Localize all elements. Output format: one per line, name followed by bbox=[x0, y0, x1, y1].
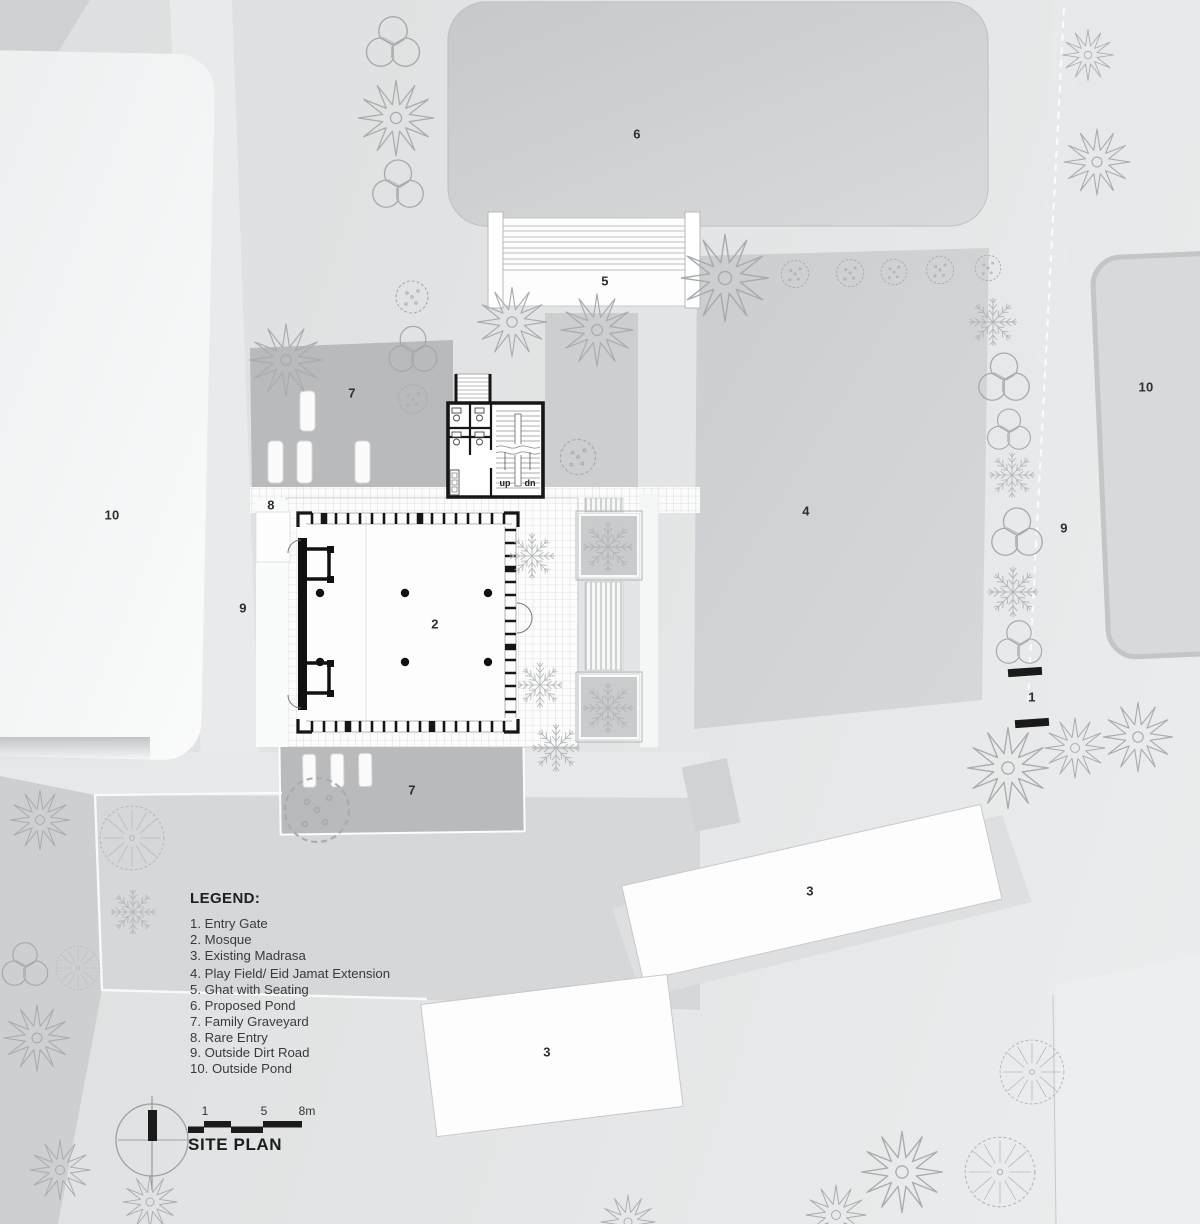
label-outside-dirt-road-left: 9 bbox=[239, 601, 247, 616]
tree-icon bbox=[989, 452, 1035, 498]
label-entry-gate: 1 bbox=[1028, 690, 1036, 705]
legend: LEGEND: 1. Entry Gate 2. Mosque 3. Exist… bbox=[190, 890, 470, 1077]
tree-icon bbox=[367, 17, 420, 67]
tree-icon bbox=[969, 298, 1017, 346]
tree-icon bbox=[110, 889, 156, 935]
stair-dn-label: dn bbox=[525, 478, 536, 488]
legend-item: 2. Mosque bbox=[190, 932, 470, 948]
parcel-left-dark bbox=[0, 776, 102, 1224]
legend-title: LEGEND: bbox=[190, 890, 470, 907]
tree-icon bbox=[601, 1195, 655, 1224]
site-plan-drawing: up dn bbox=[0, 0, 1200, 1224]
tree-icon bbox=[373, 160, 423, 207]
label-existing-madrasa-upper: 3 bbox=[806, 884, 814, 899]
scale-tick: 8m bbox=[299, 1104, 316, 1118]
proposed-pond-shape bbox=[448, 2, 988, 226]
stripe-walk-mid bbox=[585, 582, 623, 670]
parcel-bottom-right bbox=[1056, 955, 1200, 1224]
tree-icon bbox=[509, 533, 555, 579]
legend-item: 9. Outside Dirt Road bbox=[190, 1045, 470, 1061]
scale-tick: 1 bbox=[202, 1104, 209, 1118]
qibla-wall bbox=[298, 538, 307, 710]
label-mosque: 2 bbox=[431, 617, 439, 632]
tree-icon bbox=[965, 1137, 1035, 1207]
tree-icon bbox=[583, 683, 633, 733]
label-existing-madrasa-lower: 3 bbox=[543, 1045, 551, 1060]
legend-item: 4. Play Field/ Eid Jamat Extension bbox=[190, 966, 470, 982]
mosque-plan bbox=[288, 513, 532, 733]
tree-icon bbox=[988, 409, 1031, 449]
label-proposed-pond: 6 bbox=[633, 127, 641, 142]
outside-pond-left-shape bbox=[0, 49, 215, 760]
tree-icon bbox=[1064, 129, 1130, 195]
scale-tick: 5 bbox=[261, 1104, 268, 1118]
legend-item: 3. Existing Madrasa bbox=[190, 948, 470, 964]
label-outside-pond-right: 10 bbox=[1138, 380, 1153, 395]
tree-icon bbox=[517, 662, 563, 708]
tree-icon bbox=[123, 1175, 177, 1224]
service-block: up dn bbox=[448, 374, 543, 497]
label-rare-entry: 8 bbox=[267, 498, 275, 513]
drawing-title: SITE PLAN bbox=[188, 1135, 282, 1155]
tree-icon bbox=[359, 81, 434, 156]
stripe-walk-top bbox=[585, 498, 623, 512]
legend-item: 6. Proposed Pond bbox=[190, 998, 470, 1014]
tree-icon bbox=[988, 567, 1038, 617]
label-ghat-with-seating: 5 bbox=[601, 274, 609, 289]
legend-item: 1. Entry Gate bbox=[190, 916, 470, 932]
label-family-graveyard-south: 7 bbox=[408, 783, 416, 798]
label-play-field: 4 bbox=[802, 504, 810, 519]
label-outside-dirt-road-right: 9 bbox=[1060, 521, 1068, 536]
ghat-shape bbox=[488, 212, 700, 308]
tree-icon bbox=[1000, 1040, 1064, 1104]
scale-bar-icon bbox=[188, 1121, 302, 1133]
legend-item: 7. Family Graveyard bbox=[190, 1014, 470, 1030]
tree-icon bbox=[583, 522, 633, 572]
rare-entry-pad bbox=[256, 512, 290, 562]
label-family-graveyard-north: 7 bbox=[348, 386, 356, 401]
site-plan-canvas: up dn bbox=[0, 0, 1200, 1224]
outside-pond-right-shape bbox=[1092, 251, 1200, 658]
play-field-shape bbox=[694, 248, 989, 729]
tree-icon bbox=[1045, 718, 1105, 778]
stair-up-label: up bbox=[500, 478, 511, 488]
tree-icon bbox=[862, 1132, 943, 1213]
tree-icon bbox=[1104, 703, 1173, 772]
legend-item: 10. Outside Pond bbox=[190, 1061, 470, 1077]
legend-list: 1. Entry Gate 2. Mosque 3. Existing Madr… bbox=[190, 916, 470, 1077]
legend-item: 8. Rare Entry bbox=[190, 1030, 470, 1046]
graveyard-south-shape bbox=[279, 735, 524, 834]
pond-left-shadow bbox=[0, 737, 150, 761]
north-arrow-icon bbox=[116, 1096, 199, 1190]
panel-east-of-services bbox=[545, 313, 638, 493]
tree-icon bbox=[806, 1185, 866, 1224]
label-outside-pond-left: 10 bbox=[104, 508, 119, 523]
tree-icon bbox=[532, 724, 580, 772]
legend-item: 5. Ghat with Seating bbox=[190, 982, 470, 998]
tree-icon bbox=[396, 281, 428, 313]
